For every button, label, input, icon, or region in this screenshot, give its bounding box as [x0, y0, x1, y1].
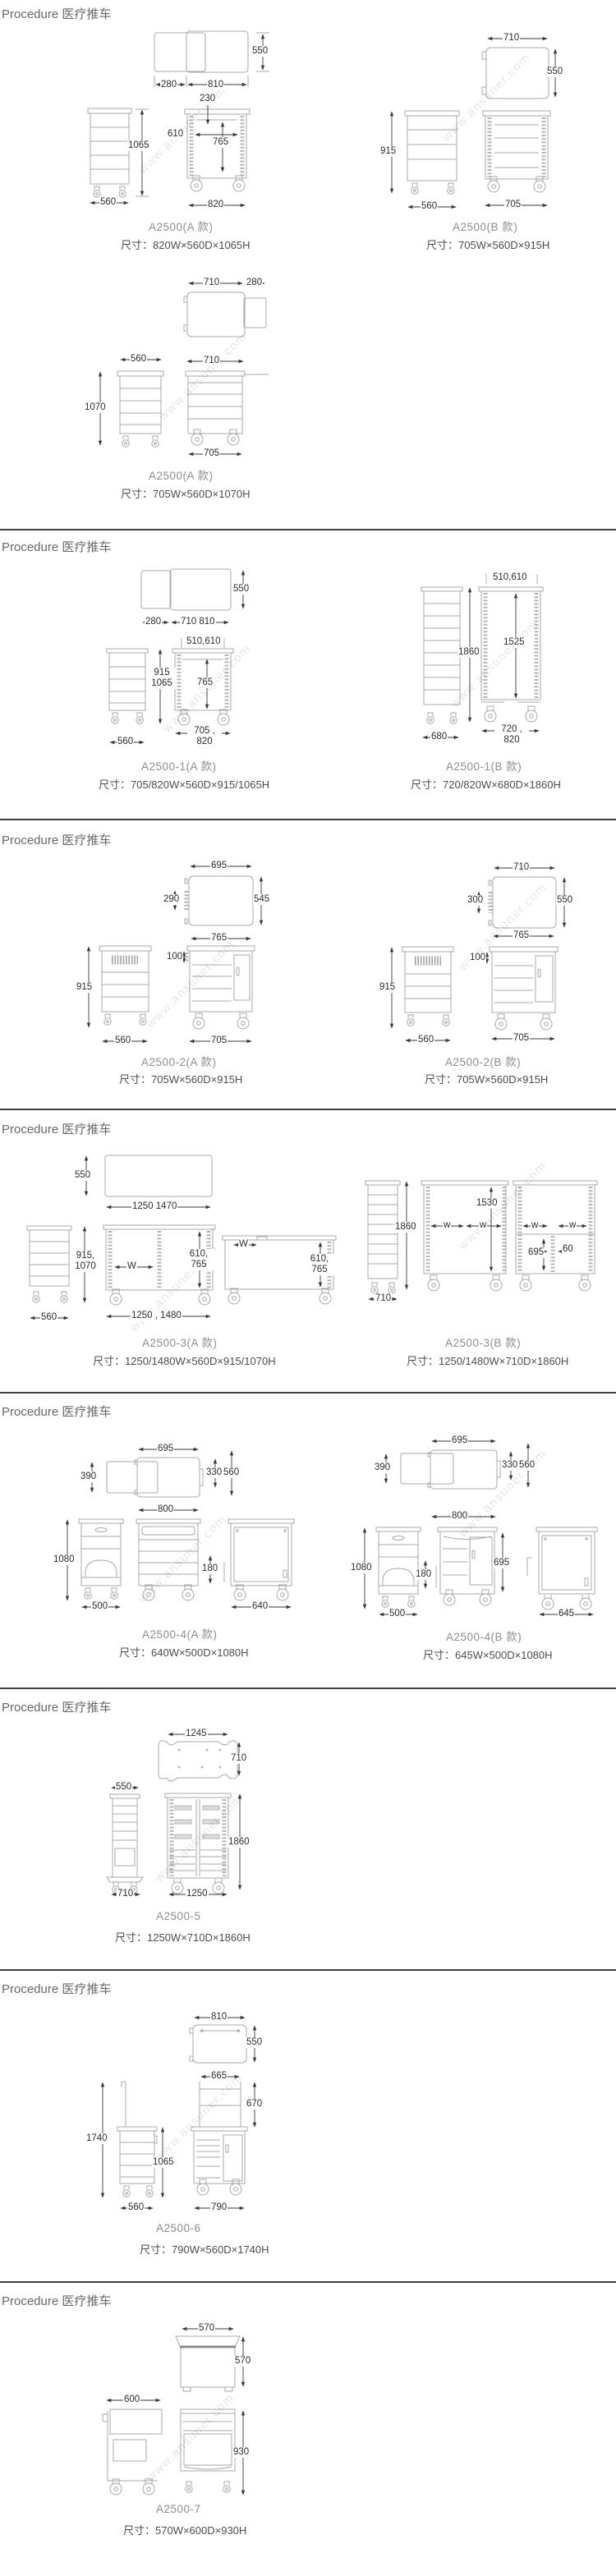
dim-label: 180 [415, 1569, 432, 1580]
dim-label: 1070 [84, 402, 107, 413]
size-label: 尺寸：705/820W×560D×915/1065H [99, 776, 269, 792]
section-divider [0, 1969, 616, 1971]
dim-label: w [443, 1220, 451, 1231]
dim-label: 1250 [186, 1889, 209, 1899]
section-header: Procedure 医疗推车 [2, 1698, 111, 1715]
dim-label: 560 [421, 201, 438, 212]
fig-a2500-1b [421, 574, 543, 737]
size-label: 尺寸：645W×500D×1080H [423, 1646, 553, 1662]
dim-label: 695 [157, 1444, 174, 1454]
model-label: A2500-1(A 款) [141, 757, 217, 774]
dim-label: 560 [40, 1312, 57, 1323]
dim-label: 820 [207, 200, 224, 210]
dim-label: 560 [117, 737, 134, 747]
dim-label: 230 [199, 94, 216, 104]
dim-label: 1065 [152, 2157, 175, 2168]
dim-label: 645 [558, 1609, 575, 1619]
dim-label: 705 [513, 1033, 530, 1044]
dim-label: 600 [123, 2395, 140, 2405]
dim-label: 1245 [185, 1729, 208, 1739]
dim-label: 560 [518, 1460, 536, 1471]
size-label: 尺寸：1250/1480W×710D×1860H [407, 1352, 568, 1368]
section-divider [0, 1392, 616, 1394]
size-label: 尺寸：720/820W×680D×1860H [411, 776, 561, 792]
dim-label: 330 [205, 1467, 223, 1478]
section-header: Procedure 医疗推车 [2, 831, 111, 848]
section-header: Procedure 医疗推车 [2, 1980, 111, 1997]
dim-label: 765 [513, 930, 530, 941]
dim-label: 545 [253, 894, 270, 905]
dim-label: 1065 [127, 140, 150, 151]
model-label: A2500-3(A 款) [142, 1334, 218, 1350]
line-art [0, 0, 616, 2576]
model-label: A2500-5 [156, 1910, 201, 1922]
model-label: A2500-2(B 款) [445, 1053, 521, 1069]
fig-a2500-7 [103, 2329, 243, 2495]
dim-label: 765 [212, 137, 229, 148]
dim-label: 560 [130, 354, 147, 365]
dim-label: 550 [232, 584, 250, 595]
dim-label: 710 [203, 278, 220, 288]
section-header: Procedure 医疗推车 [2, 1403, 111, 1420]
dim-label: 705 , 820 [187, 726, 222, 747]
size-label: 尺寸：1250/1480W×560D×915/1070H [93, 1352, 276, 1368]
fig-a2500a2 [100, 283, 269, 454]
dim-label: W [238, 1239, 249, 1250]
dim-label: w [568, 1220, 577, 1231]
size-label: 尺寸：790W×560D×1740H [140, 2241, 269, 2257]
dim-label: 570 [234, 2356, 251, 2367]
dim-label: 710 [117, 1889, 134, 1899]
section-divider [0, 1687, 616, 1689]
dim-label: 390 [80, 1472, 97, 1482]
dim-label: 930 [232, 2447, 250, 2458]
dim-label: 1080 [350, 1563, 373, 1573]
dim-label: 180 [201, 1564, 218, 1574]
section-header: Procedure 医疗推车 [2, 538, 111, 555]
dim-label: 810 [207, 80, 224, 90]
dim-label: 670 [246, 2099, 263, 2110]
size-label: 尺寸：820W×560D×1065H [121, 236, 251, 252]
dim-label: 1530 [476, 1198, 499, 1209]
dim-label: 280 [145, 617, 162, 627]
dim-label: 60 [562, 1244, 574, 1255]
dim-label: w [479, 1220, 487, 1231]
dim-label: 710 [203, 356, 220, 366]
dim-label: 765 [210, 933, 228, 944]
dim-label: 710 [230, 1753, 247, 1764]
fig-a2500-4b [365, 1441, 597, 1614]
dim-label: 695 [451, 1435, 468, 1446]
dim-label: W [126, 1261, 137, 1272]
dim-label: 570 [198, 2323, 215, 2334]
dim-label: 560 [99, 197, 117, 208]
fig-a2500b [392, 39, 555, 207]
model-label: A2500-4(B 款) [446, 1628, 522, 1644]
dim-label: 765 [196, 677, 214, 688]
dim-label: 500 [388, 1609, 406, 1619]
model-label: A2500(A 款) [149, 218, 214, 234]
dim-label: 550 [115, 1782, 132, 1793]
section-header: Procedure 医疗推车 [2, 1120, 111, 1137]
dim-label: 1250 1470 [131, 1201, 177, 1212]
dim-label: 1860 [228, 1837, 251, 1848]
dim-label: 610 [167, 129, 184, 140]
model-label: A2500(A 款) [149, 466, 214, 483]
dim-label: 800 [451, 1511, 468, 1522]
size-label: 尺寸：570W×600D×930H [123, 2522, 246, 2537]
dim-label: 550 [246, 2037, 263, 2048]
dim-label: 100 [469, 953, 486, 963]
section-header: Procedure 医疗推车 [2, 2292, 111, 2309]
dim-label: 280 [160, 80, 177, 90]
dim-label: 290 [163, 894, 180, 905]
model-label: A2500-6 [156, 2222, 201, 2234]
dim-label: 915 [379, 146, 397, 157]
dim-label: 1250 , 1480 [131, 1311, 182, 1321]
dim-label: 560 [114, 1035, 131, 1046]
fig-a2500-5 [107, 1734, 240, 1894]
dim-label: 710 [375, 1293, 392, 1304]
dim-label: 510,610 [492, 572, 528, 583]
section-divider [0, 819, 616, 820]
dim-label: 695 [493, 1558, 510, 1568]
section-divider [0, 529, 616, 530]
dim-label: 710 810 [180, 617, 216, 627]
section-header: Procedure 医疗推车 [2, 5, 111, 22]
dim-label: 610, 765 [182, 1249, 215, 1270]
dim-label: 710 [513, 862, 530, 873]
dim-label: 300 [467, 895, 484, 906]
size-label: 尺寸：705W×560D×1070H [121, 485, 251, 501]
dim-label: 710 [503, 33, 520, 44]
fig-a2500a [88, 31, 269, 205]
dim-label: 695 [210, 861, 228, 871]
dim-label: 665 [210, 2071, 228, 2082]
dim-label: 510,610 [186, 636, 222, 647]
model-label: A2500(B 款) [453, 218, 517, 234]
dim-label: 810 [210, 2012, 228, 2023]
dim-label: 560 [127, 2202, 145, 2213]
dim-label: 705 [203, 448, 220, 459]
model-label: A2500-3(B 款) [445, 1334, 521, 1350]
dim-label: 100 [166, 952, 183, 962]
dim-label: 390 [374, 1462, 391, 1473]
dim-label: 695 [527, 1247, 545, 1258]
dim-label: 560 [417, 1035, 434, 1045]
dim-label: 500 [91, 1601, 108, 1612]
dim-label: 720 , 820 [494, 724, 529, 746]
dim-label: 1860 [457, 647, 480, 658]
section-divider [0, 1109, 616, 1110]
dim-label: 915 [379, 982, 396, 993]
dim-label: 560 [223, 1467, 240, 1478]
dim-label: 1740 [85, 2133, 108, 2144]
dim-label: 705 [504, 200, 522, 210]
dim-label: 550 [546, 67, 563, 77]
size-label: 尺寸：1250W×710D×1860H [115, 1929, 251, 1945]
fig-a2500-4a [67, 1449, 294, 1607]
dim-label: 1080 [53, 1554, 76, 1565]
dim-label: 680 [430, 732, 448, 742]
dim-label: 610, 765 [303, 1254, 336, 1275]
dim-label: 800 [157, 1504, 174, 1515]
dim-label: 790 [210, 2202, 228, 2213]
dim-label: 330 [501, 1460, 518, 1471]
section-divider [0, 2281, 616, 2283]
dim-label: 550 [556, 895, 573, 906]
fig-a2500-6 [103, 2018, 255, 2208]
dim-label: 640 [251, 1601, 269, 1612]
size-label: 尺寸：705W×560D×915H [426, 236, 549, 252]
dim-label: 550 [251, 46, 269, 57]
model-label: A2500-7 [156, 2503, 201, 2515]
dim-label: 1860 [394, 1222, 417, 1233]
dim-label: w [531, 1220, 539, 1231]
model-label: A2500-4(A 款) [142, 1625, 218, 1642]
fig-a2500-1a [107, 569, 243, 742]
dim-label: 705 [210, 1035, 228, 1046]
dim-label: 280 [246, 278, 263, 288]
dim-label: 550 [74, 1170, 91, 1181]
dim-label: 915 1065 [147, 668, 177, 689]
model-label: A2500-1(B 款) [446, 757, 522, 774]
size-label: 尺寸：705W×560D×915H [425, 1071, 548, 1086]
model-label: A2500-2(A 款) [141, 1053, 217, 1069]
dim-label: 915 [76, 982, 93, 993]
dim-label: 1525 [503, 637, 526, 648]
dim-label: 915, 1070 [70, 1251, 101, 1272]
size-label: 尺寸：705W×560D×915H [119, 1071, 242, 1086]
catalog-page: Procedure 医疗推车 www.ansuner.com www.ansun… [0, 0, 616, 2576]
size-label: 尺寸：640W×500D×1080H [119, 1644, 249, 1660]
